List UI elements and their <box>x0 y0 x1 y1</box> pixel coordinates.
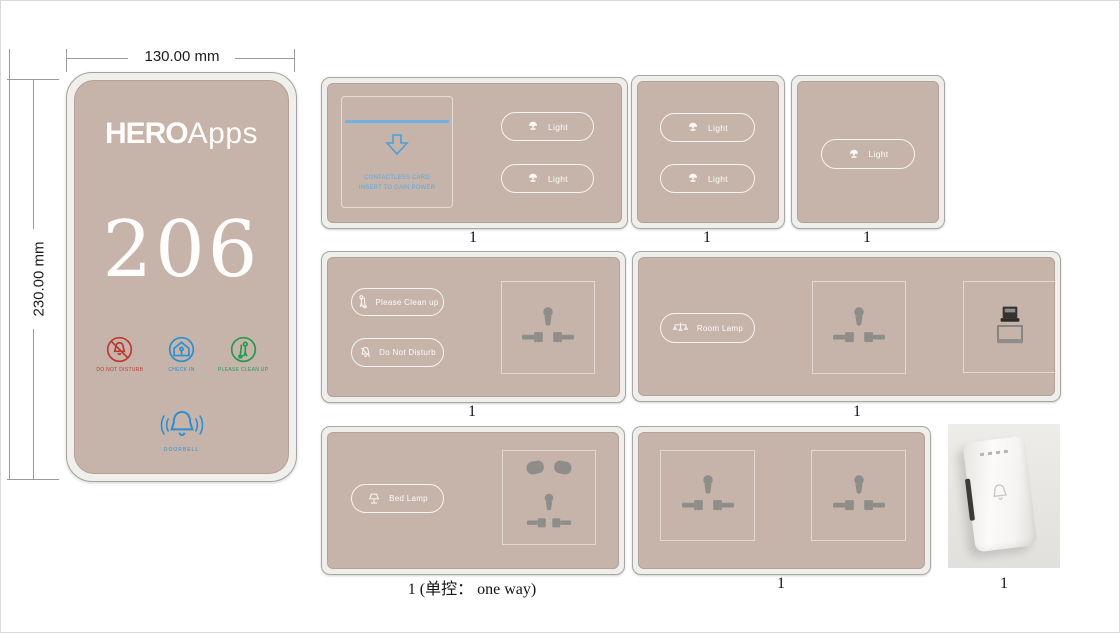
five-hole-socket[interactable] <box>502 450 596 545</box>
quantity-caption: 1 <box>863 229 871 247</box>
universal-socket-icon <box>519 305 577 351</box>
button-label: Light <box>708 174 728 184</box>
device-side-slot <box>965 479 975 521</box>
light-button[interactable]: Light <box>501 164 594 193</box>
button-label: Please Clean up <box>375 298 438 307</box>
status-label: DO NOT DISTURB <box>96 367 143 373</box>
quantity-caption: 1 <box>468 403 476 421</box>
please-clean-up-icon <box>230 336 257 363</box>
status-label: CHECK IN <box>168 367 194 373</box>
status-check-in[interactable]: CHECK IN <box>151 336 213 373</box>
button-label: Light <box>708 123 728 133</box>
quantity-caption: 1 <box>777 575 785 593</box>
brand-light: Apps <box>188 117 258 150</box>
chandelier-icon <box>672 322 689 334</box>
quantity-caption: 1 <box>1000 575 1008 593</box>
usb-charging-port[interactable] <box>963 281 1057 373</box>
key-card-slot[interactable]: CONTACTLESS CARD INSERT TO GAIN POWER <box>341 96 453 208</box>
light-button[interactable]: Light <box>821 139 915 169</box>
panel-surface <box>637 81 779 223</box>
button-label: Light <box>548 174 568 184</box>
dim-tick <box>294 49 295 72</box>
design-sheet: 130.00 mm 230.00 mm HEROApps 206 DO NOT … <box>0 0 1120 633</box>
dim-tick <box>7 479 59 480</box>
universal-socket[interactable] <box>660 450 755 541</box>
light-button[interactable]: Light <box>501 112 594 141</box>
door-panel-surface: HEROApps 206 DO NOT DISTURB <box>74 80 289 474</box>
device-bell-icon <box>986 480 1016 514</box>
bed-lamp-button[interactable]: Bed Lamp <box>351 484 444 513</box>
doorbell-device-photo <box>948 424 1060 568</box>
brand-bold: HERO <box>105 117 188 150</box>
status-do-not-disturb[interactable]: DO NOT DISTURB <box>89 336 151 373</box>
button-label: Light <box>869 149 889 159</box>
dim-line-top-right <box>235 58 295 59</box>
ceiling-light-icon <box>848 149 860 160</box>
quantity-caption: 1 <box>703 229 711 247</box>
universal-socket[interactable] <box>501 281 595 374</box>
door-panel: HEROApps 206 DO NOT DISTURB <box>66 72 297 482</box>
please-clean-up-button[interactable]: Please Clean up <box>351 288 444 316</box>
ceiling-light-icon <box>687 122 699 133</box>
status-icon-row: DO NOT DISTURB CHECK IN <box>75 336 288 373</box>
card-slot-text-line1: CONTACTLESS CARD <box>342 174 452 182</box>
button-label: Bed Lamp <box>389 494 428 503</box>
do-not-disturb-icon <box>106 336 133 363</box>
quantity-caption: 1 (单控： one way) <box>408 575 536 599</box>
brand-logo: HEROApps <box>75 117 288 151</box>
universal-socket-icon <box>830 473 888 519</box>
dim-line-left-lower <box>33 329 34 479</box>
universal-socket[interactable] <box>812 281 906 374</box>
ceiling-light-icon <box>527 173 539 184</box>
usb-plug-icon <box>992 304 1028 350</box>
button-label: Do Not Disturb <box>379 348 436 357</box>
dim-line-top-left <box>66 58 128 59</box>
quantity-caption: 1 <box>469 229 477 247</box>
light-button[interactable]: Light <box>660 164 755 193</box>
card-slot-line <box>345 120 449 123</box>
universal-socket-icon <box>679 473 737 519</box>
cleaner-icon <box>356 295 368 309</box>
dim-line-left-upper <box>33 79 34 229</box>
room-number: 206 <box>75 211 288 289</box>
button-label: Light <box>548 122 568 132</box>
ceiling-light-icon <box>527 121 539 132</box>
check-in-icon <box>168 336 195 363</box>
height-dimension-label: 230.00 mm <box>31 241 48 316</box>
do-not-disturb-button[interactable]: Do Not Disturb <box>351 338 444 367</box>
dim-tick <box>66 49 67 72</box>
status-please-clean-up[interactable]: PLEASE CLEAN UP <box>212 336 274 373</box>
dim-extension-line <box>9 49 10 479</box>
table-lamp-icon <box>367 492 381 506</box>
status-label: PLEASE CLEAN UP <box>218 367 268 373</box>
room-lamp-button[interactable]: Room Lamp <box>660 313 755 343</box>
doorbell-device-body <box>963 436 1038 553</box>
doorbell-icon <box>159 409 205 443</box>
device-top-marks <box>980 449 1010 456</box>
doorbell-button[interactable]: DOORBELL <box>75 409 288 453</box>
universal-socket-icon <box>830 305 888 351</box>
button-label: Room Lamp <box>697 324 743 333</box>
universal-socket[interactable] <box>811 450 906 541</box>
five-hole-socket-icon <box>520 457 578 539</box>
quantity-caption: 1 <box>853 403 861 421</box>
width-dimension-label: 130.00 mm <box>144 48 219 65</box>
bell-slash-icon <box>359 346 372 359</box>
insert-arrow-icon <box>383 133 411 162</box>
light-button[interactable]: Light <box>660 113 755 142</box>
panel-two-gang-light <box>631 75 785 229</box>
card-slot-text-line2: INSERT TO GAIN POWER <box>342 184 452 192</box>
ceiling-light-icon <box>687 173 699 184</box>
doorbell-label: DOORBELL <box>164 447 199 453</box>
